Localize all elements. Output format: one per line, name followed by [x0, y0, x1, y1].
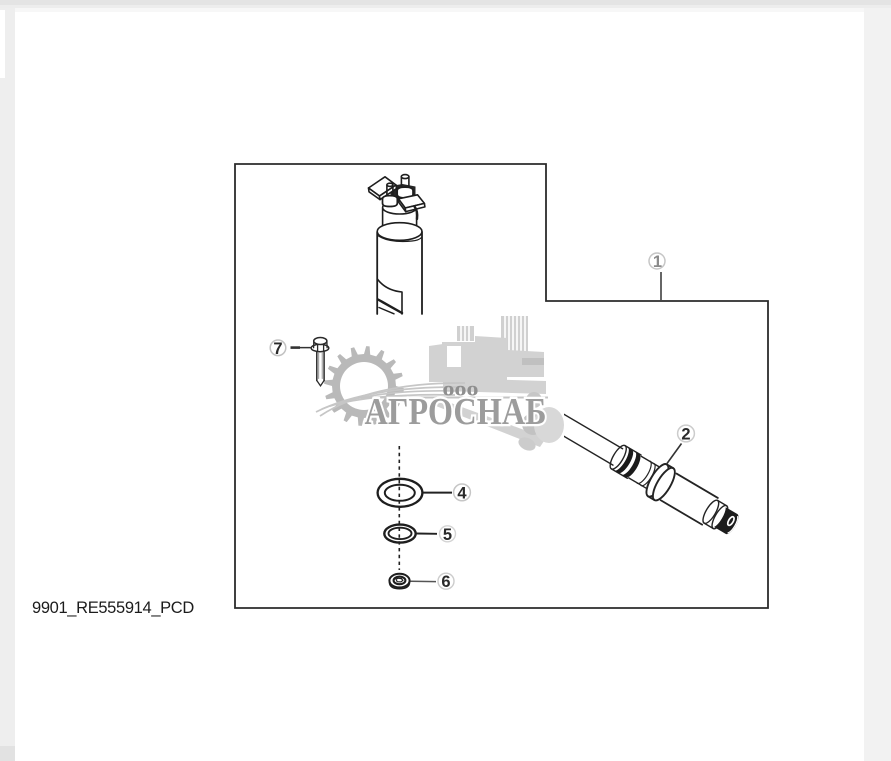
- svg-text:2: 2: [681, 426, 690, 444]
- svg-text:9901_RE555914_PCD: 9901_RE555914_PCD: [32, 599, 194, 617]
- svg-text:5: 5: [443, 526, 452, 544]
- svg-text:7: 7: [273, 340, 282, 358]
- svg-text:1: 1: [653, 253, 662, 271]
- svg-text:АГРОСНАБ: АГРОСНАБ: [365, 391, 547, 433]
- svg-text:6: 6: [441, 573, 450, 591]
- svg-text:4: 4: [457, 484, 467, 502]
